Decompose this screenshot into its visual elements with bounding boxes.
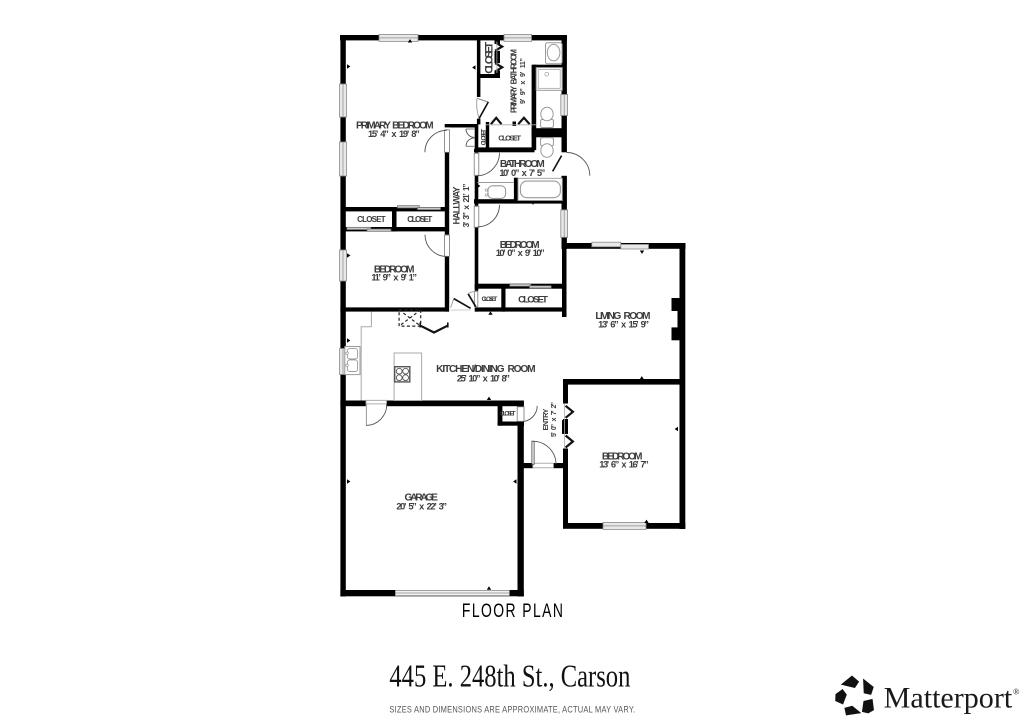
svg-text:CLOSET: CLOSET bbox=[498, 133, 521, 142]
svg-text:Matterport: Matterport bbox=[884, 682, 1013, 715]
svg-text:13’ 6” x 15’ 9”: 13’ 6” x 15’ 9” bbox=[598, 319, 649, 329]
svg-text:20’ 5” x 22’ 3”: 20’ 5” x 22’ 3” bbox=[396, 502, 447, 512]
svg-text:CLOSET: CLOSET bbox=[357, 215, 386, 224]
svg-text:CLOSET: CLOSET bbox=[484, 42, 496, 74]
svg-text:CLOSET: CLOSET bbox=[482, 296, 498, 303]
svg-text:13’ 6” x 16’ 7”: 13’ 6” x 16’ 7” bbox=[599, 460, 649, 470]
svg-text:3’ 3” x 21’ 1”: 3’ 3” x 21’ 1” bbox=[461, 184, 471, 228]
svg-text:9’ 9” x 9’ 11”: 9’ 9” x 9’ 11” bbox=[518, 58, 527, 104]
svg-text:CLOSET: CLOSET bbox=[480, 129, 487, 146]
svg-text:ENTRY: ENTRY bbox=[541, 408, 550, 430]
svg-text:FLOOR PLAN: FLOOR PLAN bbox=[462, 600, 564, 622]
svg-text:445 E. 248th St., Carson: 445 E. 248th St., Carson bbox=[389, 659, 630, 694]
svg-text:HALLWAY: HALLWAY bbox=[451, 187, 461, 225]
svg-text:5’ 0” x 7’ 2”: 5’ 0” x 7’ 2” bbox=[551, 402, 558, 437]
svg-text:10’ 0” x 9’ 10”: 10’ 0” x 9’ 10” bbox=[496, 248, 545, 258]
svg-text:11’ 9” x 9’ 1”: 11’ 9” x 9’ 1” bbox=[371, 273, 417, 283]
svg-text:PRIMARY BATHROOM: PRIMARY BATHROOM bbox=[509, 49, 518, 113]
svg-text:CLOSET: CLOSET bbox=[518, 295, 548, 306]
svg-text:CLOSET: CLOSET bbox=[407, 215, 432, 224]
svg-text:CLOSET: CLOSET bbox=[500, 410, 516, 417]
svg-text:15’ 4” x 19’ 8”: 15’ 4” x 19’ 8” bbox=[368, 129, 420, 139]
svg-text:®: ® bbox=[1013, 687, 1020, 697]
svg-text:25’ 10” x 10’ 8”: 25’ 10” x 10’ 8” bbox=[457, 374, 510, 384]
svg-text:SIZES AND DIMENSIONS ARE APPRO: SIZES AND DIMENSIONS ARE APPROXIMATE, AC… bbox=[389, 704, 635, 715]
svg-text:10’ 0” x 7’ 5”: 10’ 0” x 7’ 5” bbox=[499, 168, 545, 178]
